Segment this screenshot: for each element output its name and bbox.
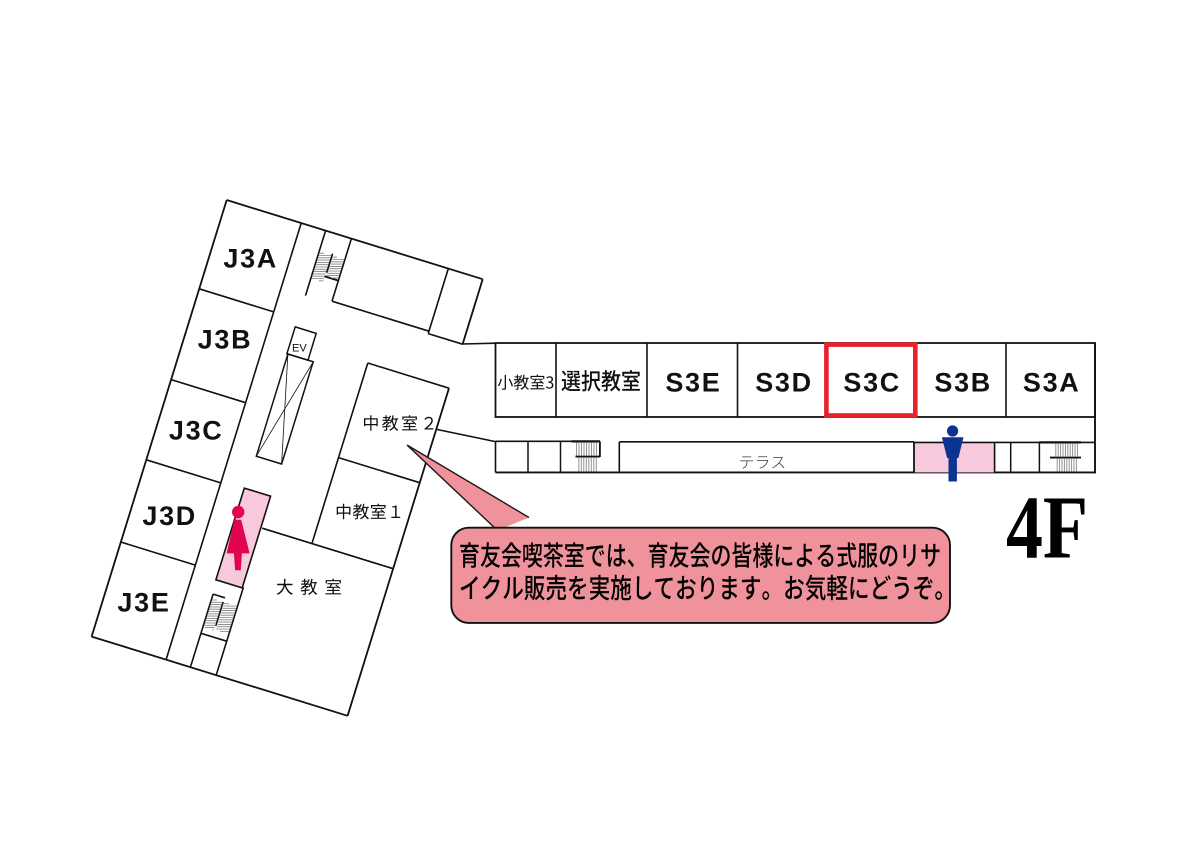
svg-text:S3E: S3E [665, 368, 721, 398]
svg-text:S3C: S3C [843, 368, 901, 398]
svg-text:EV: EV [292, 343, 307, 355]
svg-text:S3B: S3B [934, 368, 992, 398]
svg-text:S3A: S3A [1023, 368, 1081, 398]
svg-text:S3D: S3D [755, 368, 813, 398]
svg-text:J3B: J3B [198, 325, 253, 355]
svg-text:J3C: J3C [169, 416, 224, 446]
svg-text:4F: 4F [1006, 479, 1088, 578]
svg-text:J3D: J3D [142, 501, 197, 531]
svg-text:J3E: J3E [117, 588, 170, 618]
svg-text:J3A: J3A [223, 244, 278, 274]
